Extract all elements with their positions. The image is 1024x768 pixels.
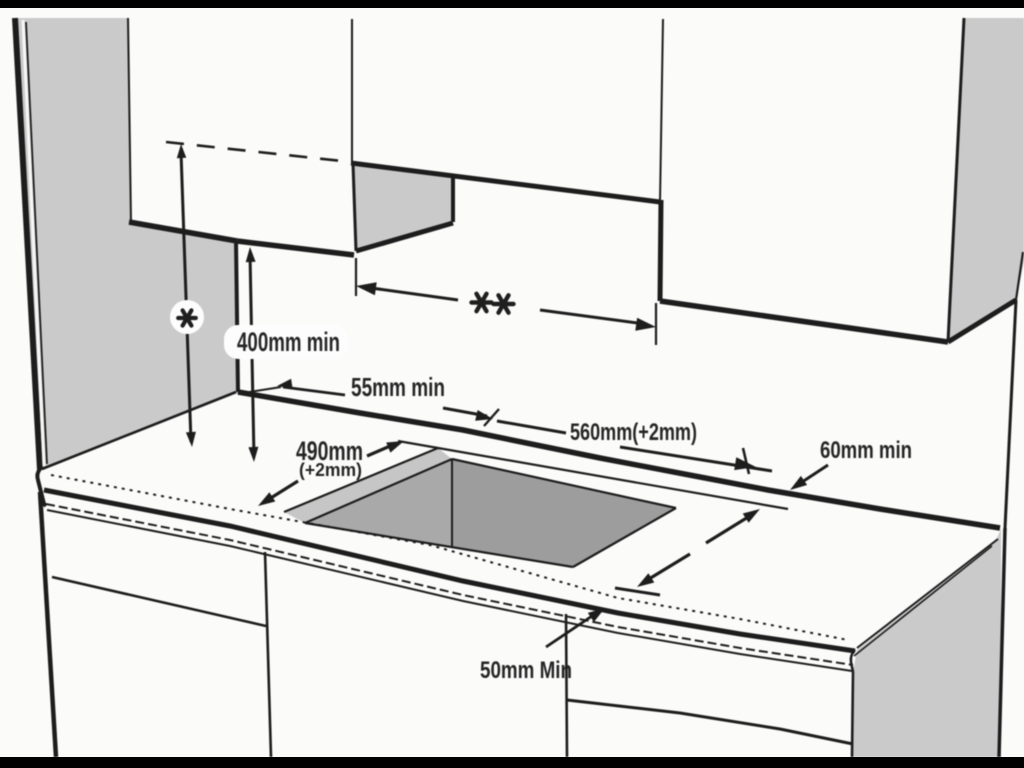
svg-text:560mm(+2mm): 560mm(+2mm): [570, 419, 697, 446]
svg-text:(+2mm): (+2mm): [299, 460, 362, 480]
svg-text:400mm min: 400mm min: [237, 327, 340, 357]
svg-text:60mm min: 60mm min: [820, 437, 912, 464]
svg-text:50mm Min: 50mm Min: [480, 657, 572, 684]
svg-text:55mm min: 55mm min: [351, 372, 445, 402]
